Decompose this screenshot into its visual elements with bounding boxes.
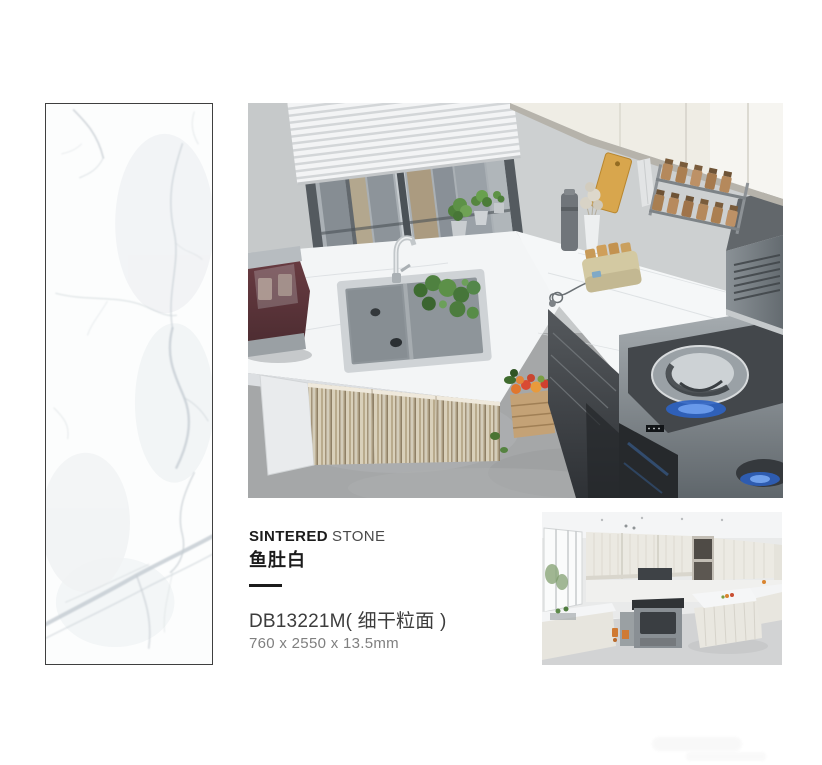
- small-sink: [550, 613, 576, 620]
- thermos: [561, 189, 578, 251]
- product-name: 鱼肚白: [249, 550, 529, 570]
- product-model: DB13221M( 细干粒面 ): [249, 611, 529, 632]
- product-poster: SINTEREDSTONE 鱼肚白 DB13221M( 细干粒面 ) 760 x…: [0, 0, 822, 765]
- kitchen-small-graphic: [542, 512, 782, 665]
- vegetable-on-floor: [500, 447, 508, 453]
- slab-sample-image: [45, 103, 213, 665]
- brand-bold-text: SINTERED: [249, 528, 328, 545]
- gas-stove: [619, 307, 783, 498]
- product-info: SINTEREDSTONE 鱼肚白 DB13221M( 细干粒面 ) 760 x…: [249, 528, 529, 653]
- small-window: [544, 528, 582, 612]
- vegetable-on-floor: [490, 432, 500, 440]
- divider-line: [249, 584, 282, 587]
- slab-marble-graphic: [46, 104, 212, 664]
- product-dimensions: 760 x 2550 x 13.5mm: [249, 635, 529, 653]
- kitchen-sink: [337, 269, 492, 374]
- wok-pan: [652, 346, 748, 404]
- brand-line: SINTEREDSTONE: [249, 528, 529, 545]
- kitchen-main-graphic: [248, 103, 783, 498]
- kitchen-photo-main: [248, 103, 783, 498]
- brand-light-text: STONE: [332, 528, 385, 545]
- watermark: [652, 737, 778, 763]
- kitchen-photo-small: [542, 512, 782, 665]
